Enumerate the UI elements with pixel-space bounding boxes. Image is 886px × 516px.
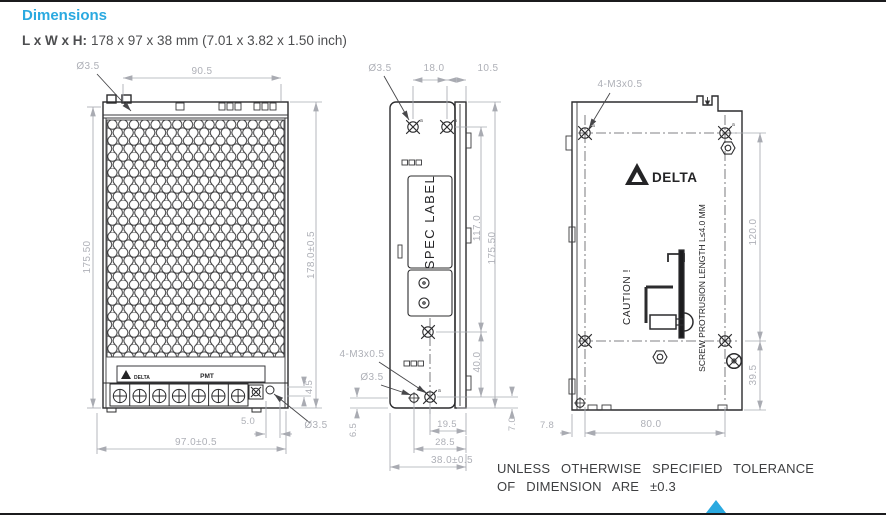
dim-side-lower-span: 40.0	[472, 351, 483, 372]
front-vent-grille	[107, 120, 284, 357]
rear-screw-note: SCREW PROTRUSION LENGTH L≤4.0 MM	[697, 204, 707, 372]
dim-side-thread-callout: 4-M3x0.5	[340, 349, 385, 360]
rear-view: DELTA CAUTION ! SCREW PROTRUSION LENGTH …	[540, 79, 766, 437]
dim-side-depth: 38.0±0.5	[431, 455, 473, 466]
rear-screw-mark-2: a	[732, 122, 735, 128]
dim-front-top-width: 90.5	[191, 66, 212, 77]
dim-front-adj-offset: 5.0	[241, 416, 255, 427]
tolerance-note-line2: OF DIMENSION ARE ±0.3	[497, 478, 814, 496]
side-screw-mark-3: a	[438, 388, 441, 394]
dim-front-top-hole: Ø3.5	[76, 61, 99, 72]
tolerance-note-line1: UNLESS OTHERWISE SPECIFIED TOLERANCE	[497, 460, 814, 478]
dim-side-height: 175.50	[487, 231, 498, 264]
dim-side-bottom-hole: Ø3.5	[360, 372, 383, 383]
dim-rear-screw-span-h: 80.0	[640, 419, 661, 430]
dimension-drawing: DELTA PMT	[0, 0, 886, 516]
dim-rear-screw-span-v: 120.0	[748, 218, 759, 245]
rear-brand-text: DELTA	[652, 170, 698, 185]
side-screw-mark-2: a	[454, 118, 457, 124]
side-screw-mark-1: a	[420, 118, 423, 124]
dim-front-left-height: 175.50	[82, 240, 93, 273]
dim-side-foot-height: 6.5	[348, 423, 359, 437]
dim-front-bottom-hole: Ø3.5	[304, 420, 327, 431]
delta-logo: DELTA	[625, 163, 698, 185]
front-view: DELTA PMT	[76, 61, 327, 454]
rear-caution-text: CAUTION !	[622, 269, 633, 325]
side-view: SPEC LABEL a a a	[340, 63, 518, 471]
dim-rear-bottom-span: 39.5	[748, 364, 759, 385]
dim-side-screw-span: 117.0	[472, 215, 483, 241]
dim-rear-edge-offset: 7.8	[540, 420, 554, 431]
tolerance-note: UNLESS OTHERWISE SPECIFIED TOLERANCE OF …	[497, 460, 814, 495]
dim-side-top-offset: 10.5	[477, 63, 498, 74]
scroll-top-icon[interactable]	[706, 500, 726, 513]
dim-side-screw-pitch: 18.0	[423, 63, 444, 74]
screw-caution-diagram	[646, 250, 693, 338]
dim-front-bottom-width: 97.0±0.5	[175, 437, 217, 448]
dim-rear-thread-callout: 4-M3x0.5	[598, 79, 643, 90]
side-spec-label: SPEC LABEL	[422, 175, 437, 270]
dim-side-top-hole: Ø3.5	[368, 63, 391, 74]
dim-front-right-height: 178.0±0.5	[306, 231, 317, 279]
dim-side-hole-pitch-2: 28.5	[435, 437, 455, 448]
dim-side-hole-pitch-1: 19.5	[437, 419, 457, 430]
front-brand-text: DELTA	[134, 375, 150, 381]
dim-front-adj-height: 4.5	[304, 380, 315, 394]
front-pot-label: PMT	[200, 373, 214, 380]
rear-screw-mark-1: a	[592, 123, 595, 129]
dim-side-bottom-offset: 7.0	[507, 417, 518, 431]
